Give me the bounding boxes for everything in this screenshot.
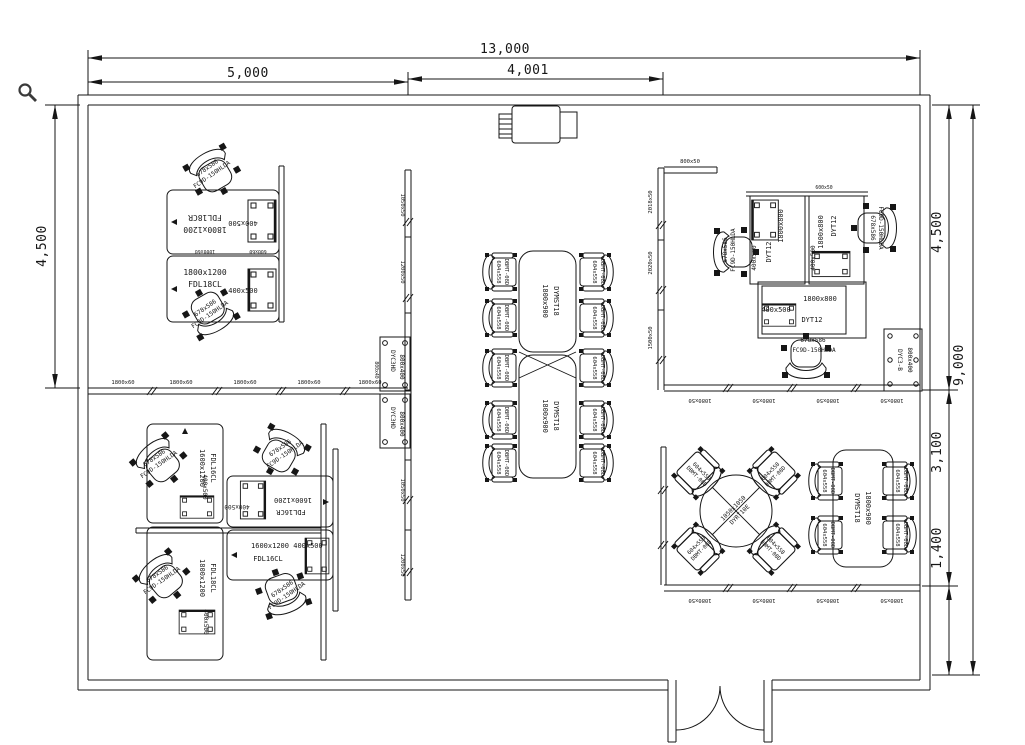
table-model-label: DYMST18 — [552, 401, 560, 431]
wall-seg-label: 1080x50 — [880, 397, 903, 403]
chair-model-label: DBMT-08D — [829, 468, 835, 495]
partition-right-lower[interactable]: 1080x50 1080x50 1080x50 1080x50 — [664, 584, 920, 603]
cabinet-model-label: DYC3HD — [389, 350, 396, 372]
wall-seg-label: 1200x50 — [399, 553, 405, 576]
desk-model-label: DYT12 — [830, 215, 838, 236]
desk-fdl16cr[interactable]: 1600x1200 FDL16CR 400x500 — [224, 476, 333, 527]
chair-size-label: 604x558 — [894, 523, 900, 546]
screen-top-left[interactable] — [279, 166, 284, 322]
dim-right-chain: 4,500 3,100 1,400 — [922, 105, 980, 675]
chair-model-label: DBMT-08D — [599, 407, 605, 434]
chair-model-label: DBMT-08D — [829, 522, 835, 549]
desk-size-label: 1600x1200 — [274, 496, 312, 504]
office-chair[interactable]: 678x586 FC9D-150HLDA — [181, 142, 247, 206]
chair-size-label: 604x558 — [495, 356, 501, 379]
desk-size-label: 1800x1200 — [198, 559, 206, 597]
pedestal-label: 400x500 — [228, 219, 258, 227]
door-jamb-right — [764, 680, 772, 742]
conference-chair[interactable]: 604x558DBMT-08D — [579, 401, 613, 439]
desk-size-label: 1800x800 — [803, 295, 837, 303]
desk-model-label: FDL16CL — [253, 555, 283, 563]
chair-size-label: 604x558 — [821, 523, 827, 546]
table-model-label: DYMST18 — [853, 493, 861, 523]
chair-size-label: 604x558 — [591, 356, 597, 379]
conference-chair[interactable]: 604x558DBMT-08D — [483, 349, 517, 387]
conference-chair[interactable]: 604x558DBMT-08D — [579, 253, 613, 291]
screen-right-cluster-top[interactable]: 600x50 — [746, 185, 868, 196]
wall-seg-label: 1800x60 — [297, 380, 320, 386]
desk-model-label: FDL16CR — [275, 508, 305, 516]
conference-chair[interactable]: 604x558DBMT-08D — [882, 462, 916, 500]
wall-seg-label: 1080x50 — [752, 597, 775, 603]
chair-size-label: 604x558 — [591, 451, 597, 474]
magnifier-cursor-icon — [20, 85, 37, 102]
edge-seg-label: 1000x60 — [195, 248, 215, 254]
table-size-label: 1800x900 — [864, 491, 872, 525]
pedestal-label: 400x500 — [761, 306, 791, 314]
door-jamb-left — [668, 680, 676, 742]
conference-chair[interactable]: 604x558DBMT-08D — [579, 349, 613, 387]
chair-size-label: 604x558 — [821, 469, 827, 492]
dim-top-total-label: 13,000 — [480, 42, 530, 57]
cabinet-size-label: 800x400 — [398, 411, 405, 437]
chair-size-label: 604x558 — [591, 306, 597, 329]
chair-model-label: FC9D-150HLDA — [792, 347, 836, 354]
wall-seg-label: 1080x50 — [816, 597, 839, 603]
round-table[interactable]: 1050x1050 DYRT10E — [700, 475, 772, 547]
partition-right-upper[interactable]: 1080x50 1080x50 1080x50 1080x50 — [664, 384, 920, 403]
wall-seg-label: 1080x50 — [688, 397, 711, 403]
cabinet-dyc3b[interactable]: DYC3-B 800x400 — [884, 329, 922, 391]
desk-fdl18cr[interactable]: FDL18CR 1800x1200 400x500 1000x60 600x60 — [167, 190, 279, 254]
conference-chair[interactable]: 604x558DBMT-08D — [809, 516, 843, 554]
chair-model-label: DBMT-08D — [503, 355, 509, 382]
pedestal-label: 400x500 — [201, 474, 208, 500]
chair-model-label: DBMT-08D — [599, 259, 605, 286]
chair-model-label: DBMT-08D — [503, 305, 509, 332]
desk-fdl18cl[interactable]: 1800x1200 FDL18CL 400x500 — [167, 256, 279, 322]
chair-size-label: 604x558 — [495, 306, 501, 329]
conference-chair[interactable]: 604x558DBMT-08D — [483, 401, 517, 439]
cabinet-size-label: 800x400 — [906, 347, 913, 373]
desk-fdl16cl-upper[interactable]: 1600x1200 FDL16CL 400x500 — [147, 424, 223, 523]
chair-size-label: 604x558 — [495, 260, 501, 283]
wall-seg-label: 1800x60 — [169, 380, 192, 386]
pedestal-label: 400x500 — [224, 503, 250, 510]
office-chair[interactable]: 678x586 FC9D-150HLDA — [131, 546, 199, 613]
dim-top-left: 5,000 — [88, 66, 408, 95]
conference-chair[interactable]: 604x558DBMT-08D — [809, 462, 843, 500]
chair-size-label: 604x558 — [495, 451, 501, 474]
dim-top-left-label: 5,000 — [227, 66, 269, 81]
chair-model-label: DBMT-08D — [902, 522, 908, 549]
wall-seg-label: 600x50 — [815, 185, 832, 191]
cabinet-size-label: 800x400 — [398, 354, 405, 380]
chair-model-label: FC9D-150HLDA — [730, 228, 737, 272]
screen-bottom-right-vertical[interactable] — [658, 447, 668, 585]
wall-seg-label: 1050x50 — [399, 193, 405, 216]
wall-seg-label: 800x40 — [373, 361, 379, 378]
chair-size-label: 604x558 — [894, 469, 900, 492]
wall-seg-label: 1080x50 — [752, 397, 775, 403]
wall-seg-label: 1200x50 — [399, 260, 405, 283]
dim-right-total-label: 9,000 — [952, 344, 967, 386]
wall-seg-label: 1800x60 — [358, 380, 381, 386]
chair-size-label: 604x558 — [591, 408, 597, 431]
table-size-label: 1800x900 — [541, 284, 549, 318]
partition-left[interactable]: 1800x60 1800x60 1800x60 1800x60 1800x60 — [88, 380, 408, 395]
wall-seg-label: 1080x50 — [816, 397, 839, 403]
desk-dyt12-right[interactable]: 400x500 1800x800 DYT12 — [809, 196, 864, 284]
dim-right-top-label: 4,500 — [930, 211, 945, 253]
office-chair[interactable]: 678x586 FC9D-150HLDA — [851, 203, 897, 253]
chair-model-label: DBMT-08D — [599, 450, 605, 477]
chair-model-label: DBMT-08D — [503, 450, 509, 477]
conference-chair[interactable]: 604x558DBMT-08D — [483, 299, 517, 337]
chair-model-label: DBMT-08D — [599, 355, 605, 382]
partition-right-vertical[interactable]: 800x50 2018x50 2020x50 1500x50 — [648, 159, 717, 390]
desk-size-label: 1800x800 — [777, 209, 785, 243]
desk-size-label: 1800x800 — [817, 215, 825, 249]
wall-seg-label: 1080x50 — [880, 597, 903, 603]
chair-model-label: DBMT-08D — [503, 259, 509, 286]
wall-seg-label: 1500x50 — [648, 326, 654, 349]
desk-model-label: DYT12 — [801, 316, 822, 324]
pedestal-label: 400x500 — [202, 609, 209, 635]
wall-seg-label: 2020x50 — [648, 251, 654, 274]
cabinet-model-label: DYC3-B — [896, 349, 903, 371]
conference-chair[interactable]: 604x558DBMT-08D — [483, 444, 517, 482]
desk-model-label: FDL18CL — [188, 280, 222, 289]
screen-bottom-cluster-right[interactable] — [333, 449, 338, 611]
conference-chair[interactable]: 604x558DBMT-08D — [882, 516, 916, 554]
desk-size-label: 1800x1200 — [183, 225, 227, 234]
wall-seg-label: 2018x50 — [648, 190, 654, 213]
chair-size-label: 604x558 — [495, 408, 501, 431]
office-chair[interactable]: 678x586 FC9D-150HLDA — [128, 430, 196, 497]
chair-model-label: DBMT-08D — [503, 407, 509, 434]
desk-dyt12-lower[interactable]: 1800x800 400x500 DYT12 — [758, 282, 866, 338]
door-leaf-right-arc — [720, 686, 764, 730]
outer-walls — [78, 95, 930, 690]
desk-model-label: DYT12 — [765, 241, 773, 262]
entrance-double-door[interactable] — [668, 680, 772, 742]
table-size-label: 1800x900 — [541, 399, 549, 433]
cabinet-dyc3hd-lower[interactable]: DYC3HD 800x400 — [380, 394, 410, 448]
conference-chair[interactable]: 604x558DBMT-08D — [579, 299, 613, 337]
cabinet-dyc3hd-upper[interactable]: DYC3HD 800x400 — [380, 337, 410, 391]
conference-table-lower[interactable]: 1800x900 DYMST18 — [519, 352, 576, 478]
wall-seg-label: 1080x50 — [688, 597, 711, 603]
chair-model-label: FC9D-150HLDA — [877, 206, 884, 250]
conference-table-upper[interactable]: 1800x900 DYMST18 — [519, 251, 576, 352]
desk-model-label: FDL18CR — [188, 213, 222, 222]
chair-model-label: DBMT-08D — [902, 468, 908, 495]
dim-right-bottom-label: 1,400 — [930, 527, 945, 569]
desk-model-label: FDL18CL — [209, 563, 217, 593]
dim-top-mid: 4,001 — [408, 63, 663, 95]
desk-fdl16cl-lower[interactable]: 1600x1200 400x500 FDL16CL — [227, 530, 333, 580]
door-leaf-left-arc — [676, 686, 720, 730]
cabinet-model-label: DYC3HD — [389, 407, 396, 429]
chair-size-label: 678x586 — [722, 237, 729, 263]
dim-top-mid-label: 4,001 — [507, 63, 549, 78]
chair-model-label: DBMT-08D — [599, 305, 605, 332]
dim-top-total: 13,000 — [88, 42, 920, 95]
wall-unit-appliance[interactable] — [499, 106, 577, 143]
office-chair[interactable]: 678x586 FC9D-150HLDA — [251, 561, 314, 621]
wall-seg-label: 1800x60 — [111, 380, 134, 386]
office-chair[interactable]: 678x586 FC9D-150HLDA — [781, 333, 836, 379]
chair-size-label: 678x586 — [800, 337, 826, 344]
dim-left-height: 4,500 — [35, 105, 80, 388]
chair-size-label: 604x558 — [591, 260, 597, 283]
desk-size-label: 1800x1200 — [183, 268, 227, 277]
desk-fdl18cl-lower[interactable]: 1800x1200 FDL18CL 400x500 — [147, 527, 223, 660]
edge-seg-label: 600x60 — [249, 248, 266, 254]
desk-size-label: 1600x1200 — [251, 542, 289, 550]
desk-model-label: FDL16CL — [209, 453, 217, 483]
conference-chair[interactable]: 604x558DBMT-08D — [483, 253, 517, 291]
desk-dyt12-left[interactable]: 400x500 1800x800 DYT12 — [750, 196, 805, 284]
floor-plan-canvas[interactable]: 13,000 5,000 4,001 4,500 4,500 3,100 1,4… — [0, 0, 1025, 745]
table-model-label: DYMST18 — [552, 286, 560, 316]
chair-size-label: 678x586 — [869, 215, 876, 241]
dim-right-mid-label: 3,100 — [930, 431, 945, 473]
wall-seg-label: 1800x60 — [233, 380, 256, 386]
dim-left-label: 4,500 — [35, 225, 50, 267]
pedestal-label: 400x500 — [810, 245, 817, 271]
conference-chair[interactable]: 604x558DBMT-08D — [579, 444, 613, 482]
pedestal-label: 400x500 — [228, 287, 258, 295]
wall-seg-label: 1050x50 — [399, 478, 405, 501]
wall-seg-label: 800x50 — [680, 159, 700, 165]
